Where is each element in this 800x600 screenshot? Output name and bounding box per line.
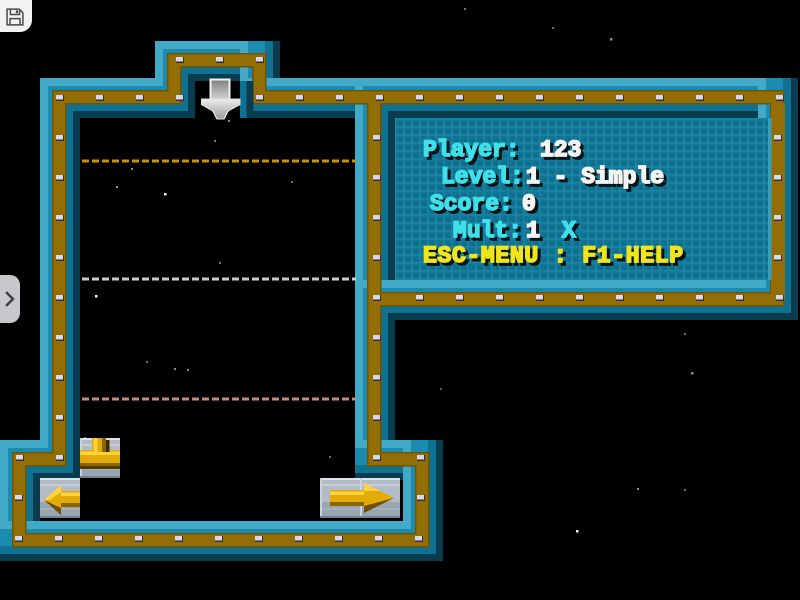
svg-text:0: 0 (522, 191, 536, 217)
svg-text:Level:: Level: (441, 164, 524, 190)
svg-text:Score:: Score: (430, 191, 513, 217)
svg-text:1: 1 (526, 218, 540, 244)
svg-text:Mult:: Mult: (453, 218, 522, 244)
svg-text:ESC-MENU : F1-HELP: ESC-MENU : F1-HELP (423, 243, 684, 269)
svg-text:1 - Simple: 1 - Simple (526, 164, 664, 190)
svg-text:X: X (562, 218, 576, 244)
svg-text:Player:: Player: (423, 137, 520, 163)
svg-text:123: 123 (540, 137, 581, 163)
